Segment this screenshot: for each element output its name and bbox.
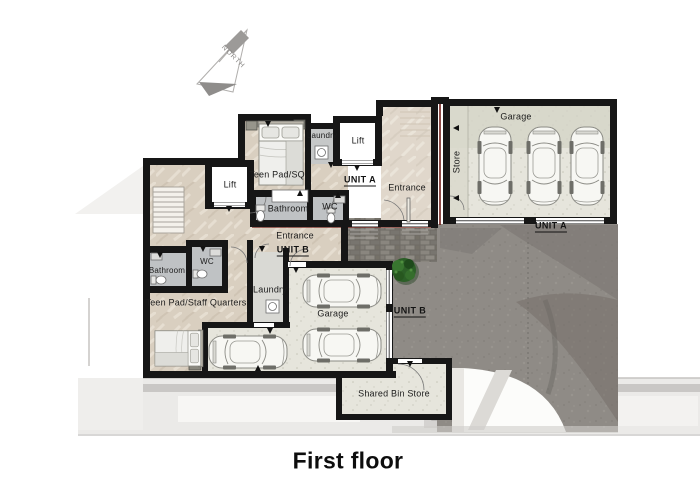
car-icon (527, 127, 562, 205)
label-laundry-a: Laundry (307, 132, 337, 140)
label-store: Store (453, 151, 462, 174)
floor-plan: Garage Store UNIT A Laundry Lift Teen Pa… (0, 0, 700, 495)
label-unit-b-driveway: UNIT B (394, 307, 426, 318)
label-garage-unit-a: Garage (500, 113, 531, 122)
car-icon (303, 274, 381, 309)
label-unit-b-hall: UNIT B (277, 246, 309, 257)
label-unit-a-driveway: UNIT A (535, 222, 567, 233)
floor-plan-drawing (0, 0, 700, 495)
car-icon (303, 328, 381, 363)
car-icon (570, 127, 605, 205)
bed-icon (155, 330, 203, 367)
page-title: First floor (293, 448, 404, 475)
label-garage-unit-b: Garage (317, 310, 348, 319)
label-bathroom-b: Bathroom (149, 267, 185, 275)
label-teen-pad-sq: Teen Pad/SQ (249, 171, 305, 180)
label-laundry-b: Laundry (253, 286, 287, 295)
car-icon (478, 127, 513, 205)
label-entrance-a: Entrance (388, 184, 426, 193)
label-wc-a: WC (322, 203, 337, 212)
label-teen-pad-staff-quarters: Teen Pad/Staff Quarters (146, 299, 247, 308)
label-entrance-b: Entrance (276, 232, 314, 241)
label-wc-b: WC (200, 258, 214, 266)
label-shared-bin-store: Shared Bin Store (358, 390, 430, 399)
label-lift-b: Lift (224, 181, 237, 190)
label-bathroom-a: Bathroom (268, 205, 309, 214)
car-icon (209, 335, 287, 370)
label-lift-a: Lift (352, 137, 365, 146)
label-unit-a: UNIT A (344, 176, 376, 187)
staircase (153, 187, 184, 233)
